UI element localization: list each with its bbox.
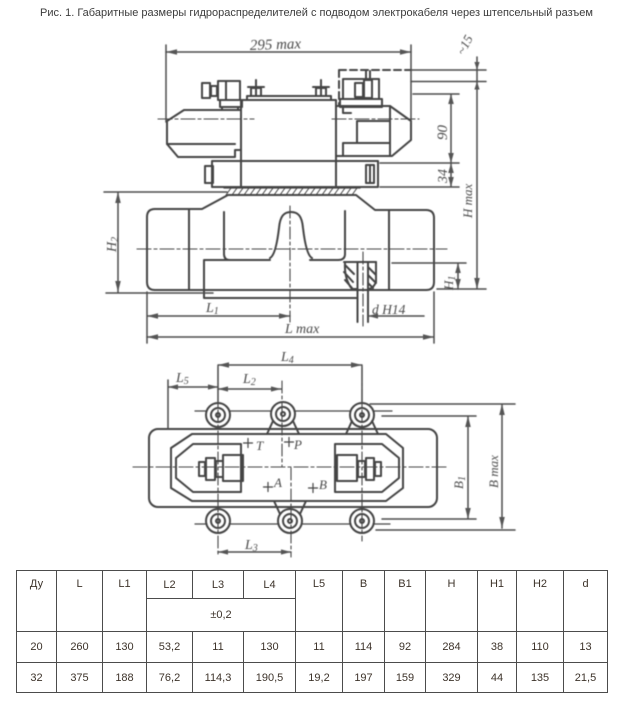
svg-text:L max: L max bbox=[284, 322, 320, 337]
svg-text:H2: H2 bbox=[105, 237, 121, 253]
svg-text:~15: ~15 bbox=[453, 32, 476, 57]
svg-text:L2: L2 bbox=[242, 372, 256, 388]
svg-text:295 max: 295 max bbox=[250, 36, 302, 54]
svg-text:34: 34 bbox=[436, 169, 451, 184]
svg-text:B1: B1 bbox=[451, 476, 468, 489]
svg-text:L5: L5 bbox=[175, 371, 189, 387]
svg-text:90: 90 bbox=[435, 125, 451, 141]
svg-text:H max: H max bbox=[460, 183, 475, 219]
svg-text:L1: L1 bbox=[205, 301, 219, 317]
svg-text:B: B bbox=[319, 477, 327, 492]
svg-text:L4: L4 bbox=[280, 350, 294, 366]
svg-text:P: P bbox=[293, 437, 302, 452]
svg-text:A: A bbox=[273, 475, 282, 490]
svg-text:d Н14: d Н14 bbox=[372, 302, 406, 317]
svg-text:B max: B max bbox=[486, 455, 501, 488]
svg-text:H1: H1 bbox=[441, 276, 458, 291]
svg-text:T: T bbox=[256, 438, 264, 453]
svg-text:L3: L3 bbox=[244, 538, 258, 554]
